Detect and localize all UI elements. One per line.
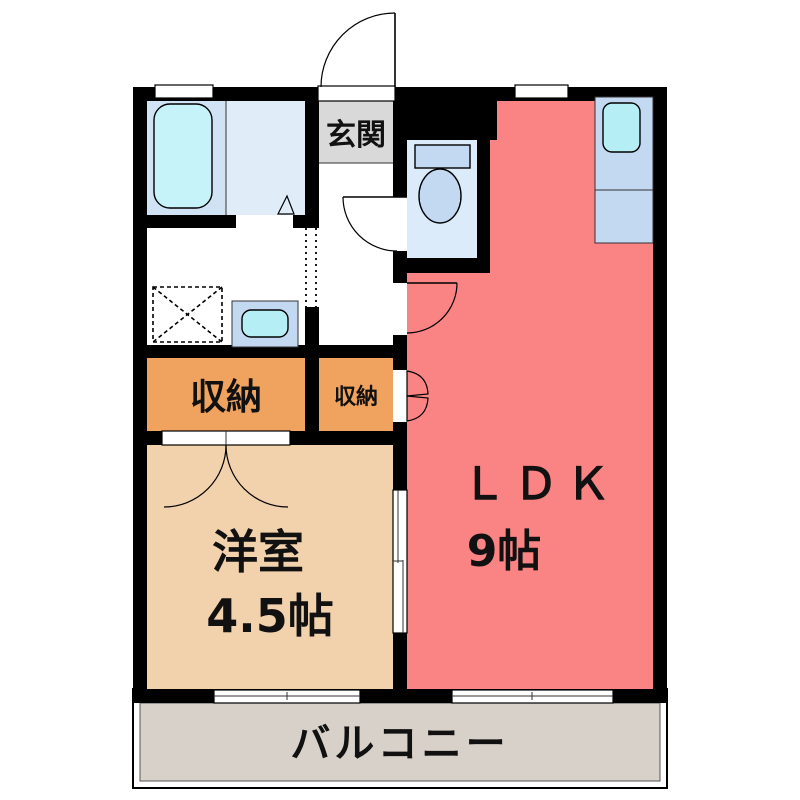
western-room-size: 4.5帖 <box>206 589 334 643</box>
wall-bath-bottom-left <box>133 215 236 228</box>
western-room-label: 洋室 <box>212 525 304 579</box>
wall-toilet-bottom <box>393 258 490 273</box>
entrance-label: 玄関 <box>326 118 386 153</box>
wall-right <box>653 87 667 703</box>
bathroom-wash-zone <box>226 99 305 215</box>
wall-storage-bottom-left <box>133 431 162 445</box>
washbasin <box>232 301 298 347</box>
floorplan-page: 玄関 収納 収納 洋室 4.5帖 ＬＤＫ 9帖 バルコニー <box>0 0 800 800</box>
toilet-tank <box>415 145 470 168</box>
wall-center-4 <box>393 422 407 490</box>
ldk-size: 9帖 <box>467 526 542 577</box>
ldk-top-window <box>515 85 568 98</box>
wall-center-5 <box>393 633 407 689</box>
ldk-bottom-window <box>452 690 613 703</box>
balcony-label: バルコニー <box>290 721 509 767</box>
western-ldk-sliding-door <box>393 490 407 633</box>
kitchen-counter <box>595 97 653 243</box>
washbasin-bowl <box>242 310 288 337</box>
floorplan-drawing: 玄関 収納 収納 洋室 4.5帖 ＬＤＫ 9帖 バルコニー <box>0 0 800 800</box>
bathtub <box>154 104 212 208</box>
washing-machine-space <box>153 287 222 342</box>
wall-storage-divider <box>305 358 319 431</box>
washroom-open-boundary <box>306 228 316 307</box>
wall-center-3 <box>393 335 407 370</box>
kitchen-sink <box>603 103 640 152</box>
wall-toilet-top-block <box>393 87 497 140</box>
wall-toilet-right <box>477 140 490 258</box>
wall-left <box>133 87 147 703</box>
ldk-label: ＬＤＫ <box>462 459 618 510</box>
toilet-bowl <box>419 169 461 223</box>
bathroom-window <box>155 85 213 98</box>
entrance-door <box>318 13 395 101</box>
storage-small-label: 収納 <box>334 384 378 410</box>
wall-bath-bottom-right <box>293 215 319 228</box>
storage-large-label: 収納 <box>190 377 262 418</box>
western-room-window <box>214 690 360 703</box>
wall-bath-hall-upper <box>305 87 319 228</box>
toilet-door <box>343 197 407 251</box>
wall-storage-bottom-right <box>290 431 407 445</box>
